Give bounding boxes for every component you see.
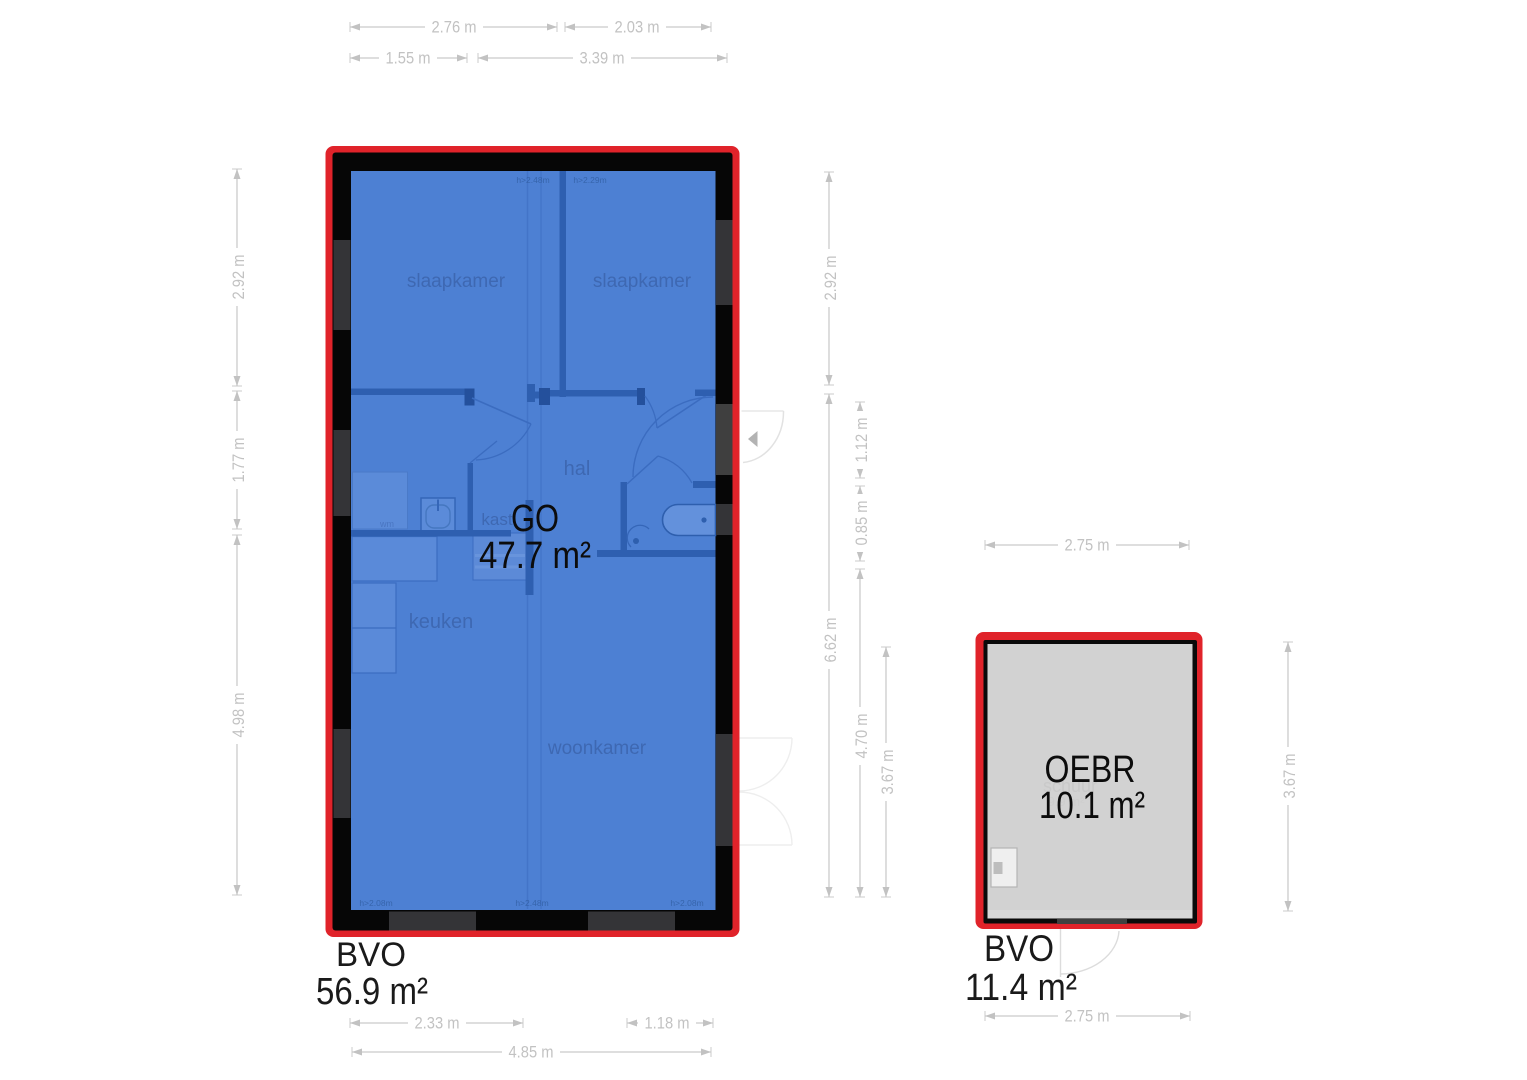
svg-text:slaapkamer: slaapkamer xyxy=(407,271,506,292)
svg-text:4.98 m: 4.98 m xyxy=(229,693,248,738)
svg-text:kast: kast xyxy=(481,510,512,529)
svg-text:10.1 m²: 10.1 m² xyxy=(1039,785,1145,827)
svg-text:2.76 m: 2.76 m xyxy=(432,18,477,37)
svg-text:h>2.48m: h>2.48m xyxy=(515,898,548,908)
svg-text:2.75 m: 2.75 m xyxy=(1065,1007,1110,1026)
svg-text:6.62 m: 6.62 m xyxy=(821,618,840,663)
svg-text:keuken: keuken xyxy=(409,611,474,633)
svg-text:3.67 m: 3.67 m xyxy=(1280,754,1299,799)
svg-text:woonkamer: woonkamer xyxy=(547,738,647,759)
svg-text:56.9 m²: 56.9 m² xyxy=(316,971,428,1013)
svg-text:1.18 m: 1.18 m xyxy=(645,1014,690,1033)
svg-text:2.03 m: 2.03 m xyxy=(615,18,660,37)
svg-text:h>2.08m: h>2.08m xyxy=(670,898,703,908)
svg-text:4.85 m: 4.85 m xyxy=(509,1043,554,1062)
svg-text:1.55 m: 1.55 m xyxy=(386,49,431,68)
svg-text:3.39 m: 3.39 m xyxy=(580,49,625,68)
svg-text:2.92 m: 2.92 m xyxy=(229,255,248,300)
svg-text:wm: wm xyxy=(379,519,394,529)
svg-text:h>2.08m: h>2.08m xyxy=(359,898,392,908)
svg-text:3.67 m: 3.67 m xyxy=(878,750,897,795)
svg-text:1.77 m: 1.77 m xyxy=(229,438,248,483)
svg-text:0.85 m: 0.85 m xyxy=(852,501,871,546)
svg-text:slaapkamer: slaapkamer xyxy=(593,271,692,292)
svg-text:GO: GO xyxy=(511,498,559,540)
svg-text:4.70 m: 4.70 m xyxy=(852,714,871,759)
svg-text:2.33 m: 2.33 m xyxy=(415,1014,460,1033)
svg-text:11.4 m²: 11.4 m² xyxy=(965,967,1077,1009)
svg-text:h>2.29m: h>2.29m xyxy=(573,175,606,185)
svg-text:BVO: BVO xyxy=(984,928,1054,969)
svg-text:BVO: BVO xyxy=(336,936,406,974)
svg-text:hal: hal xyxy=(564,458,591,480)
svg-text:2.92 m: 2.92 m xyxy=(821,256,840,301)
svg-text:1.12 m: 1.12 m xyxy=(852,418,871,463)
svg-text:2.75 m: 2.75 m xyxy=(1065,536,1110,555)
svg-text:47.7 m²: 47.7 m² xyxy=(479,535,591,577)
svg-text:h>2.48m: h>2.48m xyxy=(516,175,549,185)
